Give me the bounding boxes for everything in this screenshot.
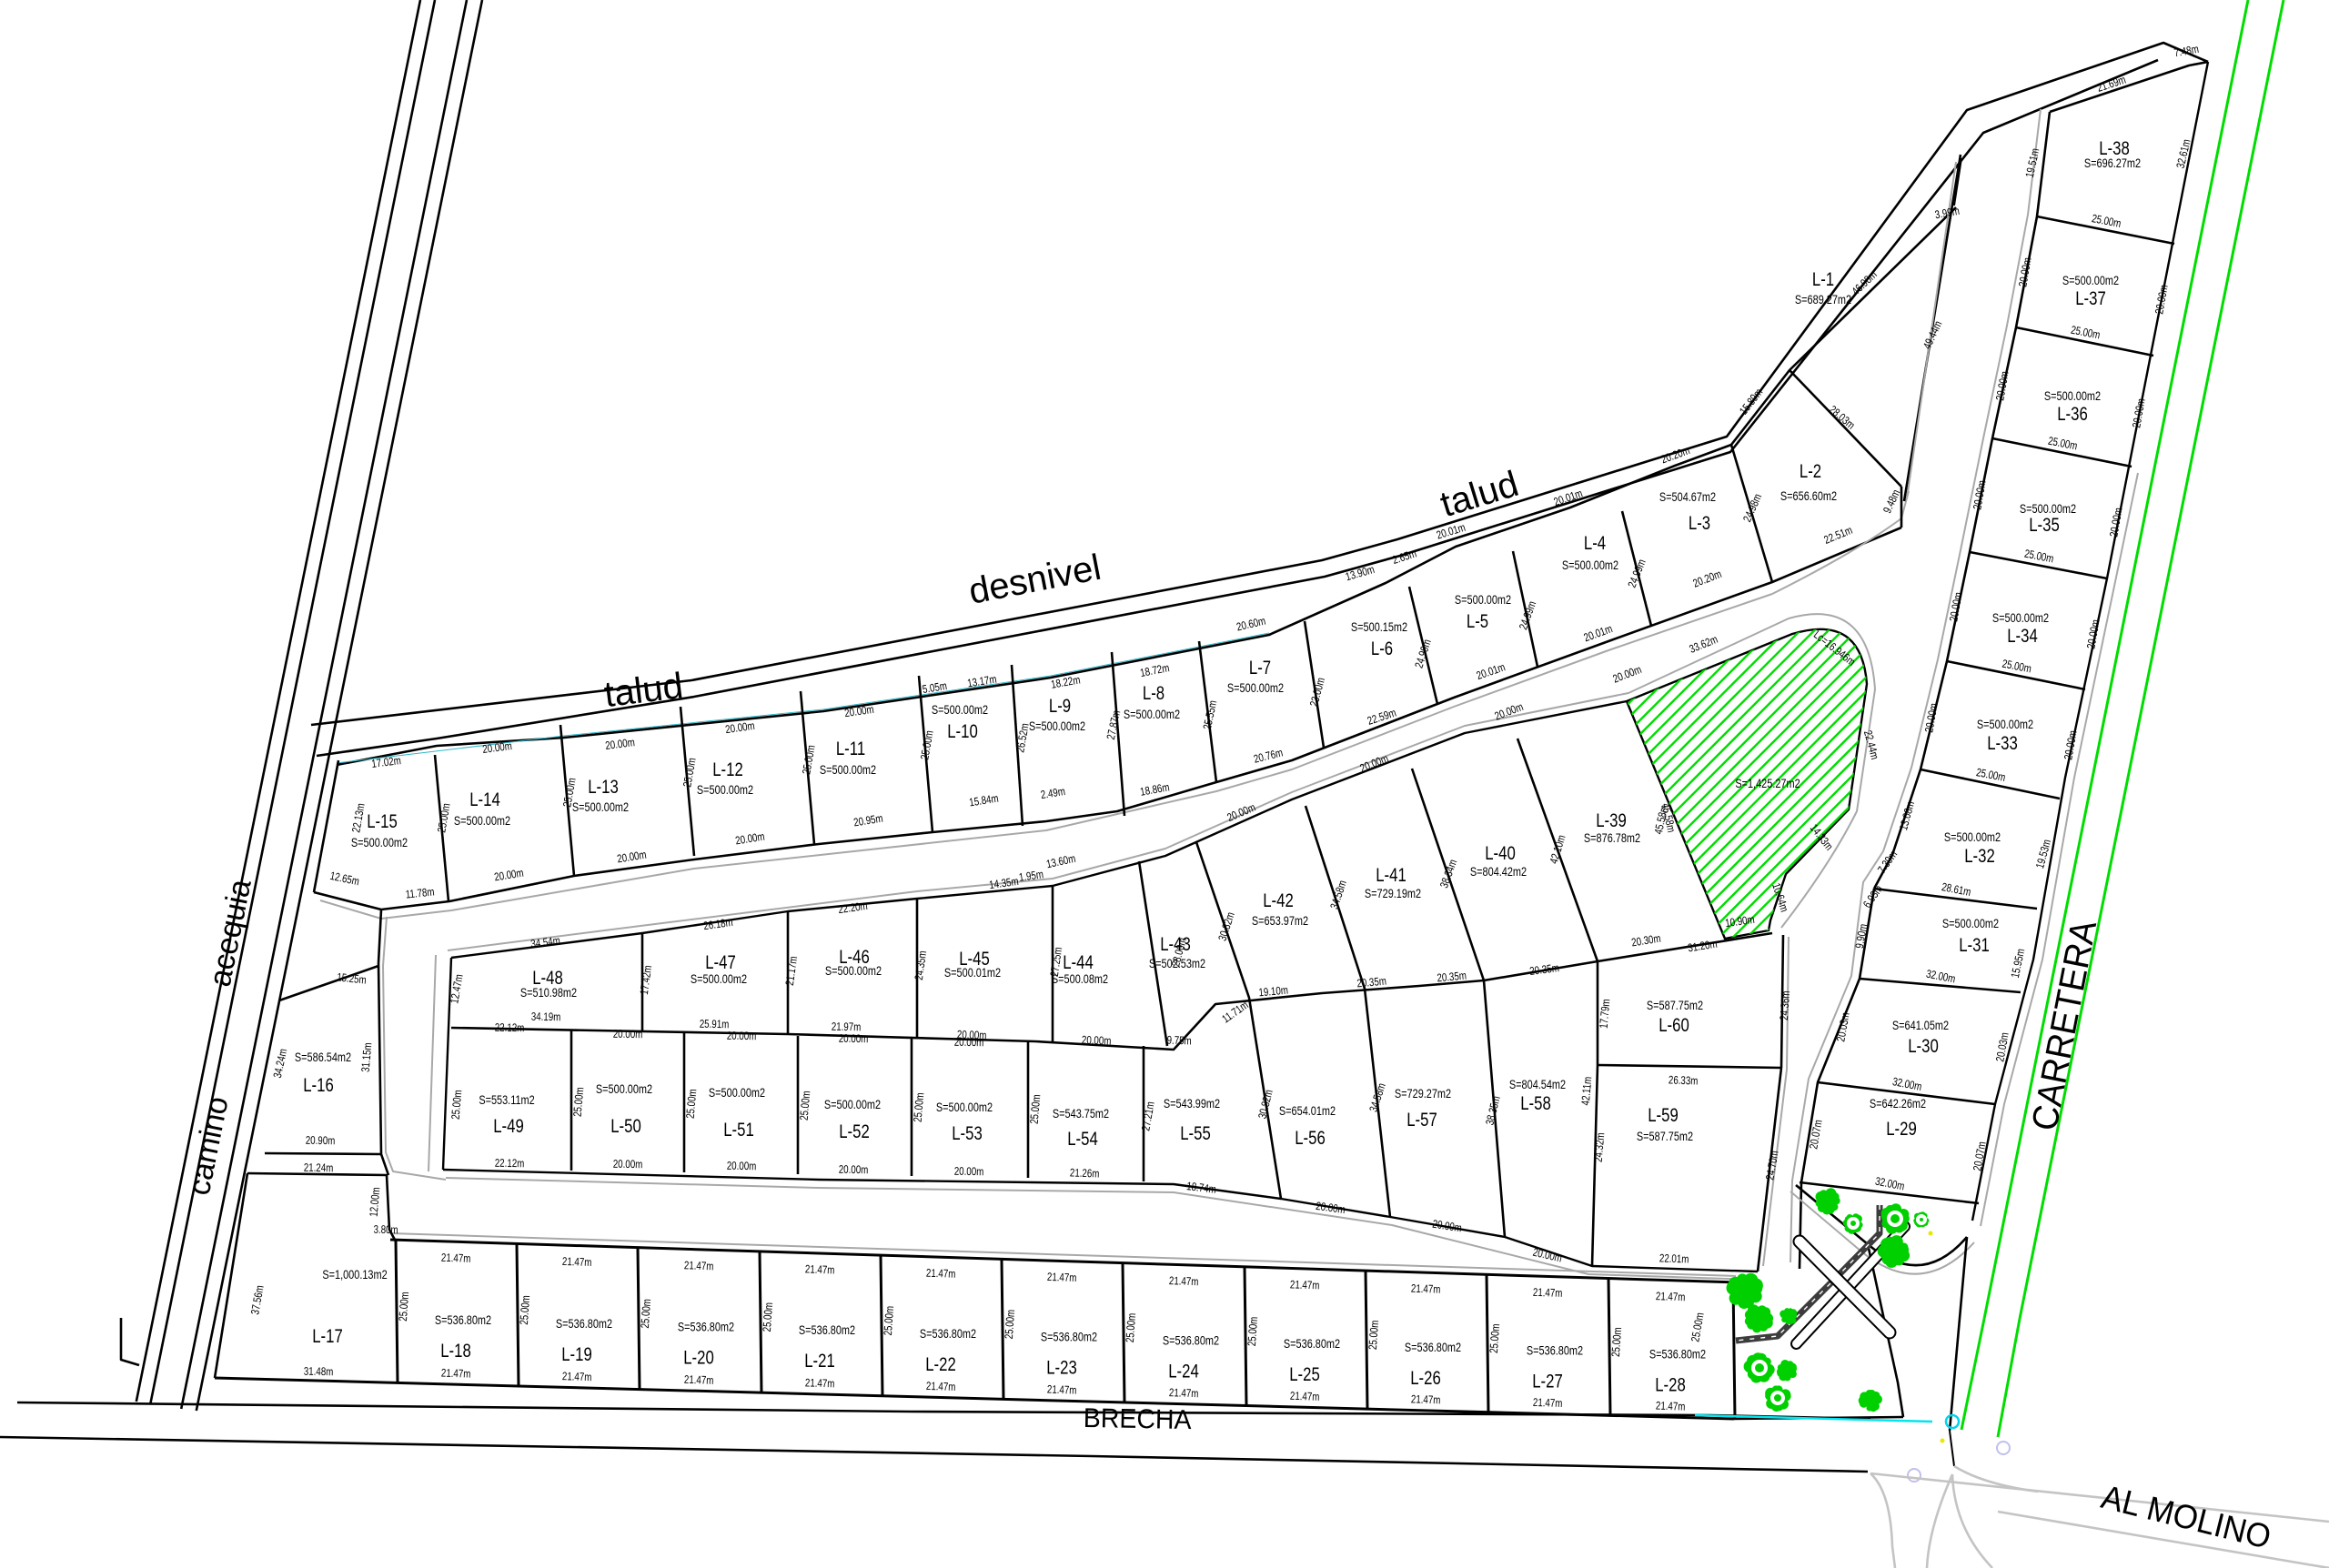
svg-text:S=500.00m2: S=500.00m2 <box>454 814 510 829</box>
svg-text:20.35m: 20.35m <box>1437 970 1467 985</box>
svg-text:S=500.00m2: S=500.00m2 <box>1562 558 1618 573</box>
svg-text:L-34: L-34 <box>2007 626 2038 647</box>
svg-text:S=536.80m2: S=536.80m2 <box>435 1313 491 1328</box>
svg-text:25.00m: 25.00m <box>398 1292 412 1322</box>
svg-text:L-60: L-60 <box>1659 1015 1689 1036</box>
svg-text:25.00m: 25.00m <box>1029 1094 1044 1125</box>
svg-text:L-5: L-5 <box>1467 611 1488 632</box>
svg-text:21.47m: 21.47m <box>1169 1275 1199 1289</box>
svg-text:21.47m: 21.47m <box>926 1268 956 1282</box>
svg-text:20.00m: 20.00m <box>727 1161 757 1173</box>
svg-text:L-22: L-22 <box>925 1354 956 1375</box>
svg-text:S=536.80m2: S=536.80m2 <box>1163 1333 1219 1348</box>
svg-text:L-35: L-35 <box>2029 515 2060 536</box>
svg-text:19.10m: 19.10m <box>1258 985 1289 1000</box>
svg-text:21.47m: 21.47m <box>1533 1287 1563 1301</box>
svg-text:21.97m: 21.97m <box>832 1021 862 1034</box>
svg-text:25.00m: 25.00m <box>1246 1316 1261 1346</box>
svg-text:L-19: L-19 <box>561 1344 592 1365</box>
svg-text:L-52: L-52 <box>839 1121 870 1142</box>
svg-text:S=500.01m2: S=500.01m2 <box>944 966 1001 980</box>
svg-text:S=500.00m2: S=500.00m2 <box>691 972 747 987</box>
svg-text:L-51: L-51 <box>723 1120 754 1141</box>
svg-text:20.00m: 20.00m <box>839 1033 869 1046</box>
svg-text:L-27: L-27 <box>1532 1372 1563 1392</box>
svg-text:12.00m: 12.00m <box>368 1187 383 1218</box>
svg-text:L-17: L-17 <box>312 1326 343 1347</box>
svg-text:25.00m: 25.00m <box>912 1092 927 1123</box>
svg-text:31.15m: 31.15m <box>360 1042 375 1073</box>
svg-text:L-3: L-3 <box>1689 513 1710 534</box>
svg-text:L-58: L-58 <box>1520 1093 1551 1114</box>
svg-text:S=500.00m2: S=500.00m2 <box>1227 681 1284 696</box>
svg-text:L-36: L-36 <box>2057 404 2088 425</box>
svg-text:25.00m: 25.00m <box>1124 1312 1139 1342</box>
svg-text:S=500.00m2: S=500.00m2 <box>820 763 876 778</box>
svg-text:21.47m: 21.47m <box>1656 1401 1686 1414</box>
svg-text:9.75m: 9.75m <box>1166 1034 1191 1047</box>
svg-text:21.47m: 21.47m <box>441 1368 471 1382</box>
svg-text:S=641.05m2: S=641.05m2 <box>1892 1019 1949 1033</box>
svg-text:S=500.00m2: S=500.00m2 <box>1029 719 1085 734</box>
svg-text:S=536.80m2: S=536.80m2 <box>799 1323 855 1338</box>
svg-text:L-54: L-54 <box>1067 1129 1098 1150</box>
svg-text:21.24m: 21.24m <box>304 1162 334 1175</box>
svg-text:S=536.80m2: S=536.80m2 <box>920 1327 976 1342</box>
svg-text:L-7: L-7 <box>1249 658 1271 678</box>
svg-text:S=656.60m2: S=656.60m2 <box>1780 489 1837 504</box>
svg-text:22.01m: 22.01m <box>1659 1252 1689 1266</box>
svg-text:L-31: L-31 <box>1959 935 1990 956</box>
svg-text:21.47m: 21.47m <box>926 1381 956 1394</box>
svg-text:L-55: L-55 <box>1180 1123 1211 1144</box>
svg-text:S=500.00m2: S=500.00m2 <box>932 703 988 718</box>
svg-text:21.47m: 21.47m <box>1290 1391 1320 1404</box>
svg-text:L-25: L-25 <box>1289 1364 1320 1385</box>
svg-text:S=500.15m2: S=500.15m2 <box>1351 620 1407 635</box>
svg-text:S=729.19m2: S=729.19m2 <box>1365 887 1421 901</box>
svg-text:20.00m: 20.00m <box>1082 1034 1112 1048</box>
svg-text:25.00m: 25.00m <box>761 1302 776 1332</box>
svg-text:20.00m: 20.00m <box>613 1159 643 1171</box>
svg-text:26.33m: 26.33m <box>1669 1074 1699 1088</box>
svg-text:S=500.00m2: S=500.00m2 <box>824 1098 881 1112</box>
svg-text:S=586.54m2: S=586.54m2 <box>295 1050 351 1065</box>
svg-text:L-33: L-33 <box>1987 733 2018 754</box>
svg-text:25.00m: 25.00m <box>685 1089 700 1120</box>
svg-text:L-49: L-49 <box>493 1116 524 1137</box>
svg-text:L-40: L-40 <box>1485 843 1516 864</box>
svg-text:S=804.42m2: S=804.42m2 <box>1470 865 1527 879</box>
svg-text:L-41: L-41 <box>1376 865 1406 886</box>
svg-text:S=500.00m2: S=500.00m2 <box>936 1101 993 1115</box>
svg-text:25.00m: 25.00m <box>450 1090 465 1121</box>
svg-text:BRECHA: BRECHA <box>1084 1403 1193 1435</box>
svg-text:L-59: L-59 <box>1648 1105 1679 1126</box>
svg-text:21.47m: 21.47m <box>1290 1279 1320 1292</box>
svg-text:24.36m: 24.36m <box>1779 990 1793 1020</box>
svg-text:25.00m: 25.00m <box>1003 1309 1018 1339</box>
svg-text:25.00m: 25.00m <box>1488 1323 1503 1353</box>
svg-text:S=500.00m2: S=500.00m2 <box>596 1082 652 1097</box>
svg-text:S=689.27m2: S=689.27m2 <box>1795 293 1851 307</box>
svg-text:L-6: L-6 <box>1371 638 1393 659</box>
svg-text:S=500.00m2: S=500.00m2 <box>2044 389 2101 404</box>
svg-text:34.19m: 34.19m <box>531 1011 561 1024</box>
svg-text:L-50: L-50 <box>610 1116 641 1137</box>
svg-text:20.00m: 20.00m <box>839 1164 869 1177</box>
svg-text:S=500.00m2: S=500.00m2 <box>351 836 408 850</box>
svg-text:L-37: L-37 <box>2075 288 2106 309</box>
svg-text:S=536.80m2: S=536.80m2 <box>556 1317 612 1332</box>
svg-text:L-28: L-28 <box>1655 1375 1686 1396</box>
svg-text:S=543.99m2: S=543.99m2 <box>1164 1097 1220 1111</box>
svg-text:L-1: L-1 <box>1812 269 1834 290</box>
svg-text:L-14: L-14 <box>469 789 500 810</box>
svg-text:21.47m: 21.47m <box>684 1260 714 1273</box>
svg-text:25.91m: 25.91m <box>700 1019 730 1031</box>
svg-text:21.47m: 21.47m <box>1411 1393 1441 1407</box>
svg-text:20.00m: 20.00m <box>727 1030 757 1043</box>
svg-text:25.00m: 25.00m <box>640 1299 654 1329</box>
svg-text:24.32m: 24.32m <box>1593 1132 1608 1163</box>
svg-text:21.47m: 21.47m <box>1411 1283 1441 1297</box>
svg-text:S=653.97m2: S=653.97m2 <box>1252 914 1308 929</box>
svg-text:S=1,000.13m2: S=1,000.13m2 <box>322 1268 387 1282</box>
svg-text:S=500.00m2: S=500.00m2 <box>1455 593 1511 608</box>
svg-text:S=729.27m2: S=729.27m2 <box>1395 1087 1451 1101</box>
svg-text:L-16: L-16 <box>303 1075 334 1096</box>
svg-text:L-57: L-57 <box>1406 1110 1437 1131</box>
svg-text:L-21: L-21 <box>804 1351 835 1372</box>
svg-text:L-2: L-2 <box>1800 461 1821 482</box>
svg-text:20.90m: 20.90m <box>306 1135 336 1148</box>
svg-text:S=500.00m2: S=500.00m2 <box>697 783 753 798</box>
svg-text:L-23: L-23 <box>1046 1358 1077 1379</box>
svg-text:S=500.00m2: S=500.00m2 <box>1942 917 1999 931</box>
svg-text:31.48m: 31.48m <box>304 1366 334 1379</box>
svg-text:21.47m: 21.47m <box>1169 1387 1199 1401</box>
svg-text:S=1,425.27m2: S=1,425.27m2 <box>1735 777 1800 791</box>
svg-text:L-47: L-47 <box>705 952 736 973</box>
svg-text:21.47m: 21.47m <box>684 1374 714 1388</box>
svg-text:L-9: L-9 <box>1049 696 1071 717</box>
svg-text:S=804.54m2: S=804.54m2 <box>1509 1078 1566 1092</box>
svg-text:S=500.00m2: S=500.00m2 <box>2062 274 2119 288</box>
svg-text:L-53: L-53 <box>952 1123 983 1144</box>
svg-text:S=642.26m2: S=642.26m2 <box>1870 1097 1926 1111</box>
svg-text:L-30: L-30 <box>1908 1036 1939 1057</box>
svg-text:L-44: L-44 <box>1063 952 1094 973</box>
svg-text:S=500.00m2: S=500.00m2 <box>1944 830 2001 845</box>
svg-text:21.47m: 21.47m <box>805 1377 835 1391</box>
svg-text:21.47m: 21.47m <box>1047 1271 1077 1285</box>
svg-text:21.47m: 21.47m <box>1047 1384 1077 1398</box>
svg-text:17.79m: 17.79m <box>1598 999 1613 1030</box>
svg-text:S=553.11m2: S=553.11m2 <box>479 1093 534 1108</box>
svg-text:S=500.00m2: S=500.00m2 <box>709 1086 765 1101</box>
svg-text:S=500.00m2: S=500.00m2 <box>1124 708 1180 722</box>
svg-text:3.80m: 3.80m <box>373 1224 398 1237</box>
svg-text:L-13: L-13 <box>588 777 619 798</box>
svg-text:S=500.00m2: S=500.00m2 <box>2020 502 2076 517</box>
svg-text:L-15: L-15 <box>367 811 398 832</box>
svg-text:S=876.78m2: S=876.78m2 <box>1584 831 1640 846</box>
svg-text:22.12m: 22.12m <box>495 1158 525 1171</box>
svg-text:20.00m: 20.00m <box>954 1166 984 1179</box>
svg-text:25.00m: 25.00m <box>1367 1320 1382 1350</box>
svg-text:L-39: L-39 <box>1596 810 1627 831</box>
svg-text:L-42: L-42 <box>1263 890 1294 911</box>
svg-text:S=696.27m2: S=696.27m2 <box>2084 156 2141 171</box>
svg-text:S=500.00m2: S=500.00m2 <box>1992 611 2049 626</box>
svg-text:S=536.80m2: S=536.80m2 <box>1284 1337 1340 1352</box>
svg-text:S=536.80m2: S=536.80m2 <box>678 1320 734 1334</box>
svg-text:S=536.80m2: S=536.80m2 <box>1527 1343 1583 1358</box>
svg-text:L-11: L-11 <box>836 739 865 759</box>
svg-text:25.00m: 25.00m <box>1610 1327 1625 1357</box>
svg-text:21.26m: 21.26m <box>1070 1167 1100 1181</box>
svg-text:S=500.00m2: S=500.00m2 <box>825 964 882 979</box>
svg-text:L-24: L-24 <box>1168 1362 1199 1382</box>
svg-text:L-18: L-18 <box>440 1341 471 1362</box>
svg-text:25.00m: 25.00m <box>519 1295 533 1325</box>
svg-text:L-20: L-20 <box>683 1348 714 1369</box>
svg-text:L-8: L-8 <box>1143 683 1164 704</box>
svg-text:L-26: L-26 <box>1410 1368 1441 1389</box>
svg-text:21.47m: 21.47m <box>441 1252 471 1266</box>
svg-text:21.47m: 21.47m <box>562 1256 592 1270</box>
svg-text:L-10: L-10 <box>947 721 978 742</box>
svg-text:S=536.80m2: S=536.80m2 <box>1405 1341 1461 1355</box>
svg-text:S=536.80m2: S=536.80m2 <box>1041 1330 1097 1344</box>
svg-text:20.00m: 20.00m <box>954 1037 984 1050</box>
svg-text:21.47m: 21.47m <box>1656 1291 1686 1304</box>
svg-text:22.12m: 22.12m <box>495 1022 525 1035</box>
svg-text:L-4: L-4 <box>1584 533 1606 554</box>
svg-text:20.35m: 20.35m <box>1356 976 1387 990</box>
svg-text:21.47m: 21.47m <box>1533 1397 1563 1411</box>
svg-text:S=510.98m2: S=510.98m2 <box>520 986 577 1000</box>
svg-text:L-56: L-56 <box>1295 1128 1326 1149</box>
svg-text:S=504.67m2: S=504.67m2 <box>1659 490 1716 505</box>
svg-text:L-32: L-32 <box>1964 846 1995 867</box>
svg-text:21.47m: 21.47m <box>805 1263 835 1277</box>
svg-text:42.11m: 42.11m <box>1580 1076 1595 1106</box>
svg-text:S=587.75m2: S=587.75m2 <box>1637 1130 1693 1144</box>
svg-text:25.00m: 25.00m <box>572 1087 587 1118</box>
svg-text:S=654.01m2: S=654.01m2 <box>1279 1104 1336 1119</box>
svg-text:S=536.80m2: S=536.80m2 <box>1649 1347 1706 1362</box>
svg-text:20.00m: 20.00m <box>613 1029 643 1041</box>
svg-text:S=500.00m2: S=500.00m2 <box>1977 718 2033 732</box>
svg-text:S=587.75m2: S=587.75m2 <box>1647 999 1703 1013</box>
svg-text:L-12: L-12 <box>712 759 743 780</box>
svg-text:21.47m: 21.47m <box>562 1371 592 1384</box>
svg-text:S=543.75m2: S=543.75m2 <box>1053 1107 1109 1121</box>
svg-text:L-29: L-29 <box>1886 1119 1917 1140</box>
svg-text:25.00m: 25.00m <box>882 1306 897 1336</box>
svg-text:25.00m: 25.00m <box>799 1091 813 1121</box>
svg-text:S=500.00m2: S=500.00m2 <box>572 800 629 815</box>
